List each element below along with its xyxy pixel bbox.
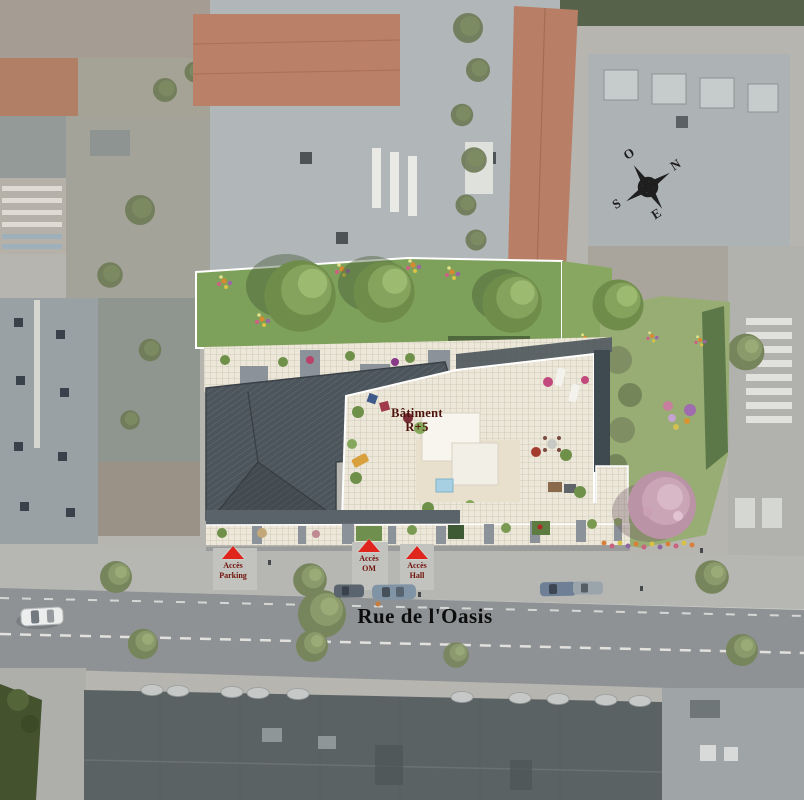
access-om-marker xyxy=(358,539,380,552)
access-hall-marker xyxy=(406,546,428,559)
roof-volume xyxy=(452,443,498,485)
access-parking-label-line2: Parking xyxy=(198,571,268,581)
access-hall-label-line1: Accès xyxy=(382,561,452,571)
site-plan-canvas: Bâtiment R+5 Rue de l'Oasis Accès Parkin… xyxy=(0,0,804,800)
access-parking: Accès Parking xyxy=(198,546,268,580)
car-parked xyxy=(372,584,416,600)
site-plan-graphics xyxy=(0,0,804,800)
car-parked xyxy=(573,582,603,595)
east-wall xyxy=(594,350,610,472)
car-parked xyxy=(334,585,364,598)
access-parking-label-line1: Accès xyxy=(198,561,268,571)
access-hall: Accès Hall xyxy=(382,546,452,580)
pool xyxy=(436,479,453,492)
hedge-east xyxy=(702,306,728,470)
access-hall-label-line2: Hall xyxy=(382,571,452,581)
car-parked xyxy=(540,582,576,597)
access-parking-marker xyxy=(222,546,244,559)
dark-roof xyxy=(84,690,662,800)
